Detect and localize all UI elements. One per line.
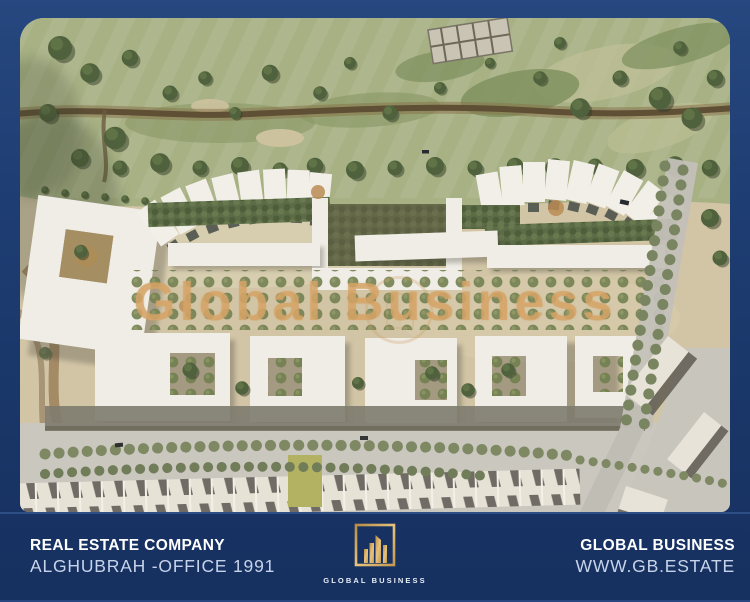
aerial-masterplan-photo: Global Business [20, 18, 730, 512]
brand-logo: GLOBAL BUSINESS [305, 522, 445, 585]
company-block: REAL ESTATE COMPANY ALGHUBRAH -OFFICE 19… [30, 537, 275, 577]
company-address: ALGHUBRAH -OFFICE 1991 [30, 556, 275, 577]
footer: REAL ESTATE COMPANY ALGHUBRAH -OFFICE 19… [0, 512, 750, 602]
brand-block: GLOBAL BUSINESS WWW.GB.ESTATE [576, 537, 735, 577]
company-name: REAL ESTATE COMPANY [30, 537, 275, 555]
orchard-rows [130, 270, 670, 330]
building-icon [352, 522, 398, 568]
aerial-render [20, 18, 730, 512]
brand-website: WWW.GB.ESTATE [576, 556, 735, 577]
brand-name: GLOBAL BUSINESS [576, 537, 735, 555]
logo-caption: GLOBAL BUSINESS [305, 576, 445, 585]
